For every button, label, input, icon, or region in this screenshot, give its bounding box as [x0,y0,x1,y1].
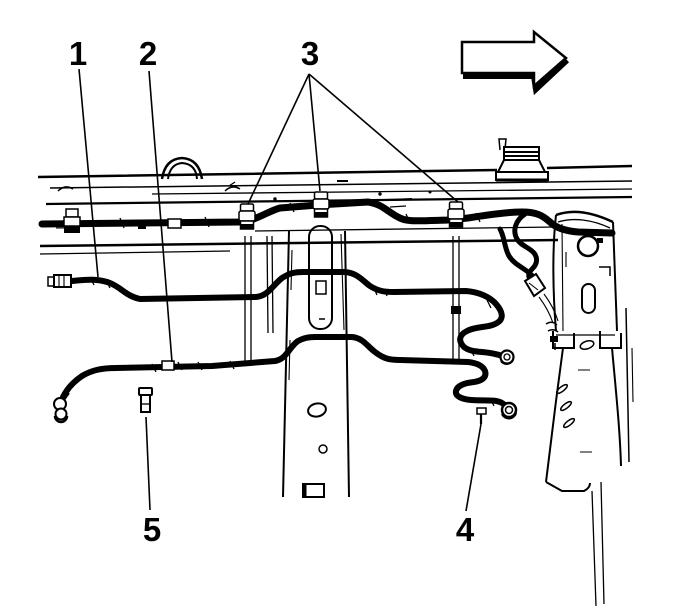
quick-connector-2 [54,393,69,422]
clip-item-5 [139,388,152,412]
frame-rail [38,139,632,254]
leader-line-4 [466,424,481,511]
callout-2-label: 2 [139,35,157,72]
right-bracket [546,212,633,606]
callout-1-label: 1 [69,35,87,72]
pipe-junction [162,361,174,370]
bolt-item-4 [477,408,486,424]
callout-3-label: 3 [301,35,319,72]
rear-hose [500,214,558,350]
callout-5-label: 5 [143,511,161,548]
hanger-rods [245,236,461,362]
front-direction-arrow-icon [462,32,567,89]
diagram-page: 1 2 3 4 5 [0,0,688,612]
crossmember [283,226,349,497]
leader-line-5 [146,417,150,510]
hose-end-fitting-lower [502,403,516,418]
bump-stop [496,139,548,180]
retainer-clip-2 [313,192,329,217]
upper-fuel-pipe [48,272,514,364]
callout-4-label: 4 [456,511,475,548]
retainer-clip-1 [239,204,255,229]
retainer-clip-3 [448,202,464,227]
hose-end-fitting-upper [501,351,514,364]
leader-line-3 [309,74,458,202]
quick-connector-1 [48,275,71,287]
technical-diagram: 1 2 3 4 5 [0,0,688,612]
leader-line-2 [149,71,172,362]
